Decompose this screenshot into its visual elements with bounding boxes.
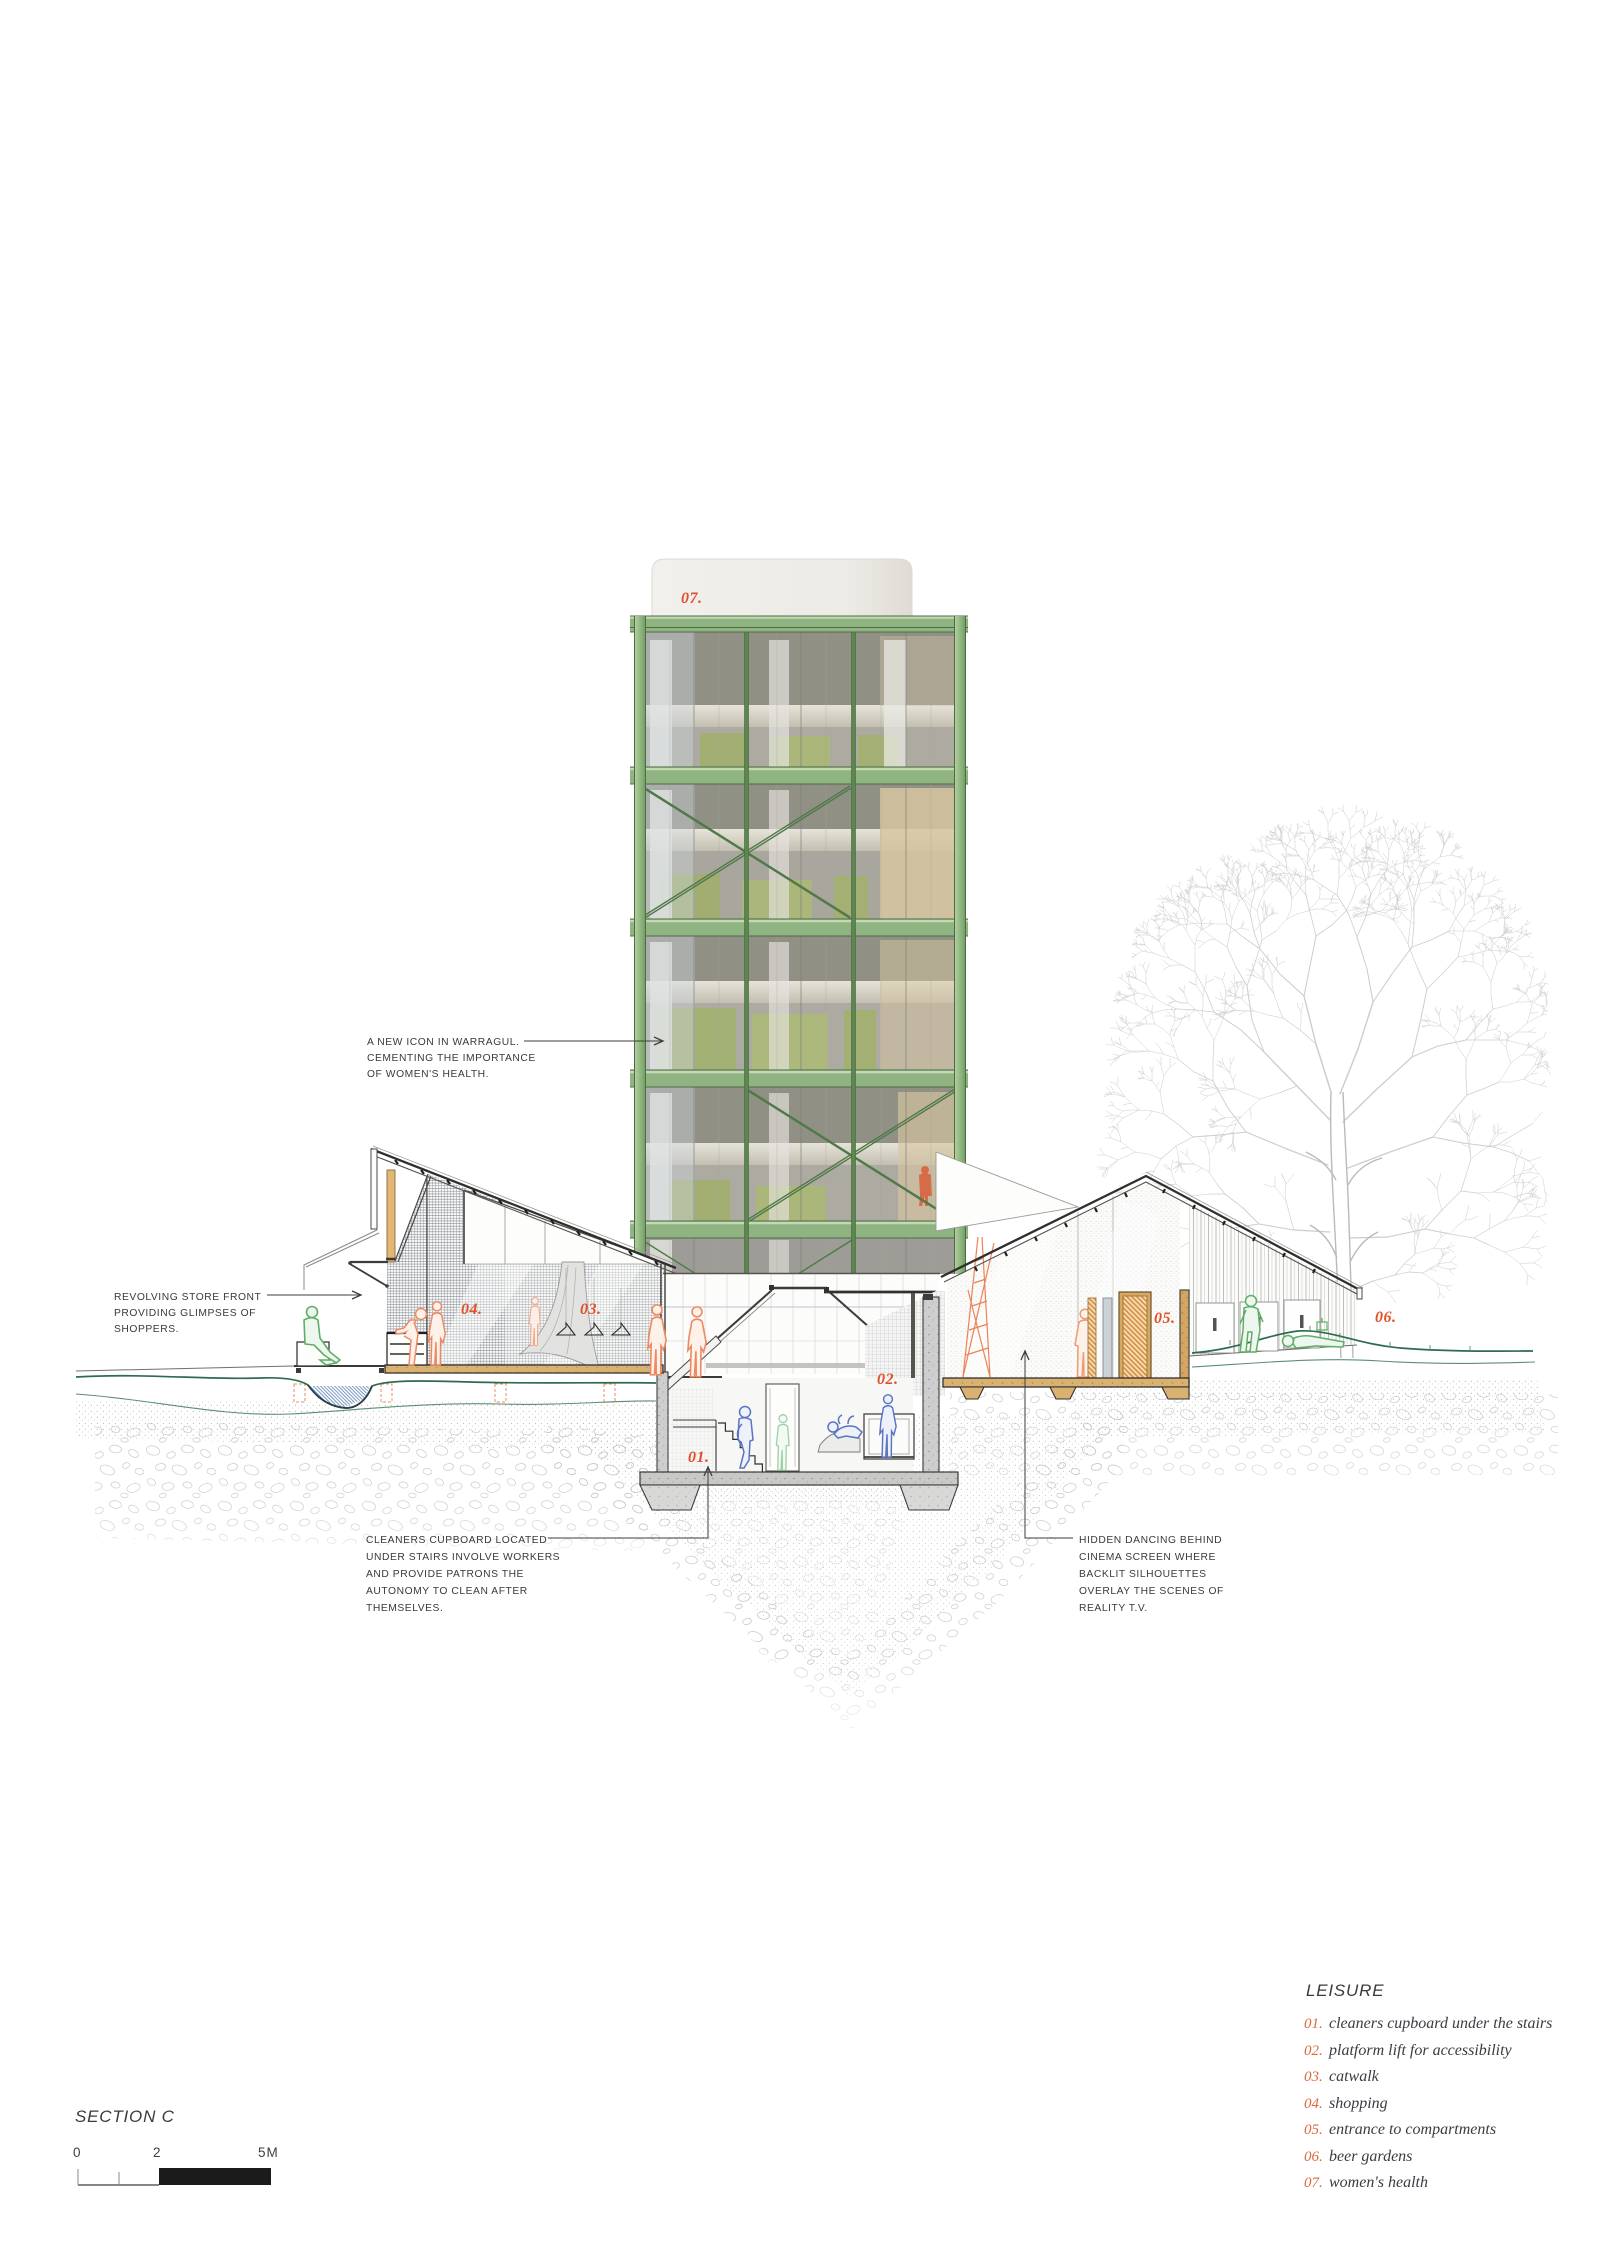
svg-text:5M: 5M [258, 2145, 279, 2160]
svg-text:03.: 03. [580, 1301, 602, 1318]
svg-text:women's health: women's health [1329, 2174, 1428, 2191]
svg-text:01.: 01. [1304, 2016, 1323, 2032]
svg-text:SHOPPERS.: SHOPPERS. [114, 1324, 179, 1335]
svg-text:UNDER STAIRS INVOLVE WORKERS: UNDER STAIRS INVOLVE WORKERS [366, 1552, 560, 1563]
svg-text:A NEW ICON IN WARRAGUL.: A NEW ICON IN WARRAGUL. [367, 1037, 519, 1048]
svg-text:06.: 06. [1375, 1309, 1397, 1326]
svg-text:05.: 05. [1154, 1310, 1176, 1327]
svg-text:shopping: shopping [1329, 2095, 1388, 2112]
svg-text:SECTION C: SECTION C [75, 2107, 175, 2126]
svg-text:06.: 06. [1304, 2149, 1323, 2165]
svg-text:05.: 05. [1304, 2122, 1323, 2138]
svg-text:OVERLAY THE SCENES OF: OVERLAY THE SCENES OF [1079, 1586, 1224, 1597]
svg-text:07.: 07. [1304, 2175, 1323, 2191]
svg-text:catwalk: catwalk [1329, 2068, 1380, 2085]
svg-text:CINEMA SCREEN WHERE: CINEMA SCREEN WHERE [1079, 1552, 1216, 1563]
svg-text:beer gardens: beer gardens [1329, 2148, 1412, 2165]
svg-text:LEISURE: LEISURE [1306, 1981, 1384, 2000]
svg-text:03.: 03. [1304, 2069, 1323, 2085]
svg-text:04.: 04. [1304, 2096, 1323, 2112]
svg-text:REALITY T.V.: REALITY T.V. [1079, 1603, 1148, 1614]
svg-text:2: 2 [153, 2145, 162, 2160]
svg-text:HIDDEN DANCING BEHIND: HIDDEN DANCING BEHIND [1079, 1535, 1222, 1546]
svg-text:02.: 02. [877, 1371, 899, 1388]
svg-text:THEMSELVES.: THEMSELVES. [366, 1603, 443, 1614]
svg-text:07.: 07. [681, 590, 703, 607]
svg-text:CLEANERS CUPBOARD LOCATED: CLEANERS CUPBOARD LOCATED [366, 1535, 547, 1546]
svg-text:REVOLVING STORE FRONT: REVOLVING STORE FRONT [114, 1292, 261, 1303]
svg-text:BACKLIT SILHOUETTES: BACKLIT SILHOUETTES [1079, 1569, 1207, 1580]
svg-text:PROVIDING GLIMPSES OF: PROVIDING GLIMPSES OF [114, 1308, 256, 1319]
svg-text:CEMENTING THE IMPORTANCE: CEMENTING THE IMPORTANCE [367, 1053, 536, 1064]
svg-text:01.: 01. [688, 1449, 710, 1466]
svg-text:02.: 02. [1304, 2043, 1323, 2059]
svg-text:platform lift for accessibilit: platform lift for accessibility [1328, 2042, 1513, 2059]
svg-text:OF WOMEN'S HEALTH.: OF WOMEN'S HEALTH. [367, 1069, 489, 1080]
svg-text:AND PROVIDE PATRONS THE: AND PROVIDE PATRONS THE [366, 1569, 524, 1580]
svg-text:04.: 04. [461, 1301, 483, 1318]
svg-text:0: 0 [73, 2145, 82, 2160]
svg-text:entrance to compartments: entrance to compartments [1329, 2121, 1496, 2138]
svg-text:cleaners cupboard under the st: cleaners cupboard under the stairs [1329, 2015, 1552, 2032]
svg-text:AUTONOMY TO CLEAN AFTER: AUTONOMY TO CLEAN AFTER [366, 1586, 528, 1597]
